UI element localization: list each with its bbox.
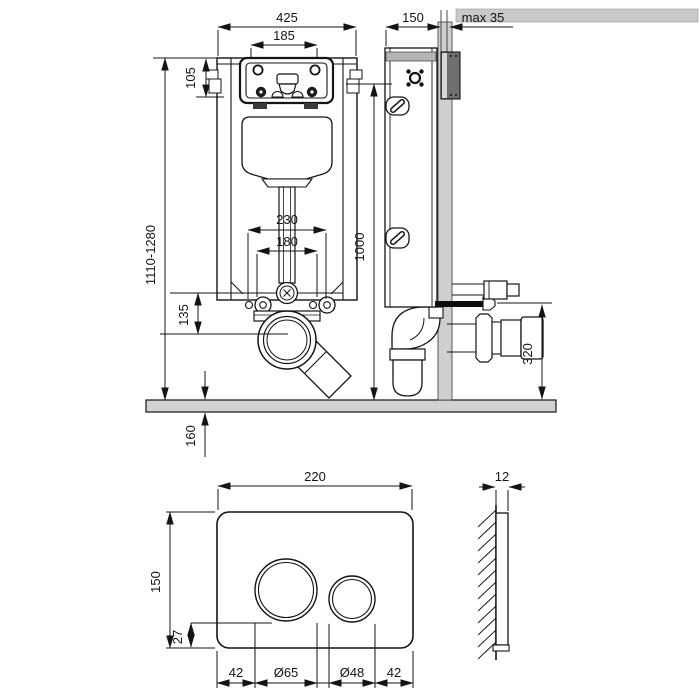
- technical-drawing-page: 425 185 105 1110-1280 230 180: [0, 0, 700, 700]
- dim-frame-depth-label: 150: [402, 10, 424, 25]
- plate-side-profile: [496, 513, 508, 645]
- dim-small-button-diameter-label: Ø48: [340, 665, 365, 680]
- dim-outlet-height-label: 320: [520, 343, 535, 365]
- plate-side-foot: [493, 645, 509, 651]
- dim-install-height: 1110-1280: [143, 58, 217, 400]
- box-foot-left: [253, 103, 267, 109]
- dim-access-opening-width: 185: [251, 28, 317, 57]
- dim-plate-thickness: 12: [479, 469, 525, 511]
- dim-plate-width: 220: [218, 469, 412, 510]
- dim-outlet-drop-label: 135: [176, 304, 191, 326]
- flush-plate-front-view: 220 150 27 42 Ø65 Ø48: [148, 469, 413, 688]
- dim-panel-height-label: 1000: [352, 233, 367, 262]
- drain-outlet: [258, 311, 316, 369]
- wall-bracket-tab-lower: [386, 228, 409, 248]
- dim-outlet-floor-offset-label: 160: [183, 425, 198, 447]
- dim-plate-thickness-label: 12: [495, 469, 509, 484]
- dim-right-margin-label: 42: [387, 665, 401, 680]
- frame-side-body: [385, 48, 437, 307]
- cistern-frame-front-view: 425 185 105 1110-1280 230 180: [143, 10, 362, 457]
- floor-section: [146, 400, 556, 412]
- dim-frame-width-label: 425: [276, 10, 298, 25]
- small-flush-button: [329, 576, 375, 622]
- cistern-access-block: [441, 52, 460, 99]
- dim-left-margin-label: 42: [229, 665, 243, 680]
- cistern-installation-drawing: 425 185 105 1110-1280 230 180: [0, 0, 700, 700]
- drain-elbow: [390, 307, 443, 396]
- dim-plate-height-label: 150: [148, 571, 163, 593]
- dim-access-box-offset-label: 105: [183, 67, 198, 89]
- dim-frame-depth: 150: [386, 10, 440, 46]
- dim-outlet-floor-offset: 160: [183, 371, 205, 457]
- wall-bracket-tab-upper: [386, 97, 409, 115]
- dim-bolt-spacing-inner-label: 180: [276, 234, 298, 249]
- dim-install-height-label: 1110-1280: [143, 225, 158, 285]
- dim-wall-finish-max-label: max 35: [462, 10, 505, 25]
- flush-pipe-connector: [277, 283, 298, 304]
- cistern-frame-side-view: 150 max 35 1000 320: [346, 9, 698, 400]
- large-flush-button: [255, 559, 317, 621]
- flush-plate-side-view: 12: [478, 469, 525, 660]
- wall-hatching: [478, 505, 496, 660]
- dim-button-bottom-offset-label: 27: [170, 630, 185, 644]
- screw-hole-top-right: [310, 65, 319, 74]
- dim-access-opening-label: 185: [273, 28, 295, 43]
- access-box: [240, 58, 333, 109]
- dim-plate-height: 150: [148, 512, 215, 648]
- dim-bolt-spacing-outer-label: 230: [276, 212, 298, 227]
- screw-hole-top-left: [253, 65, 262, 74]
- dim-large-button-diameter-label: Ø65: [274, 665, 299, 680]
- dim-plate-width-label: 220: [304, 469, 326, 484]
- box-foot-right: [304, 103, 318, 109]
